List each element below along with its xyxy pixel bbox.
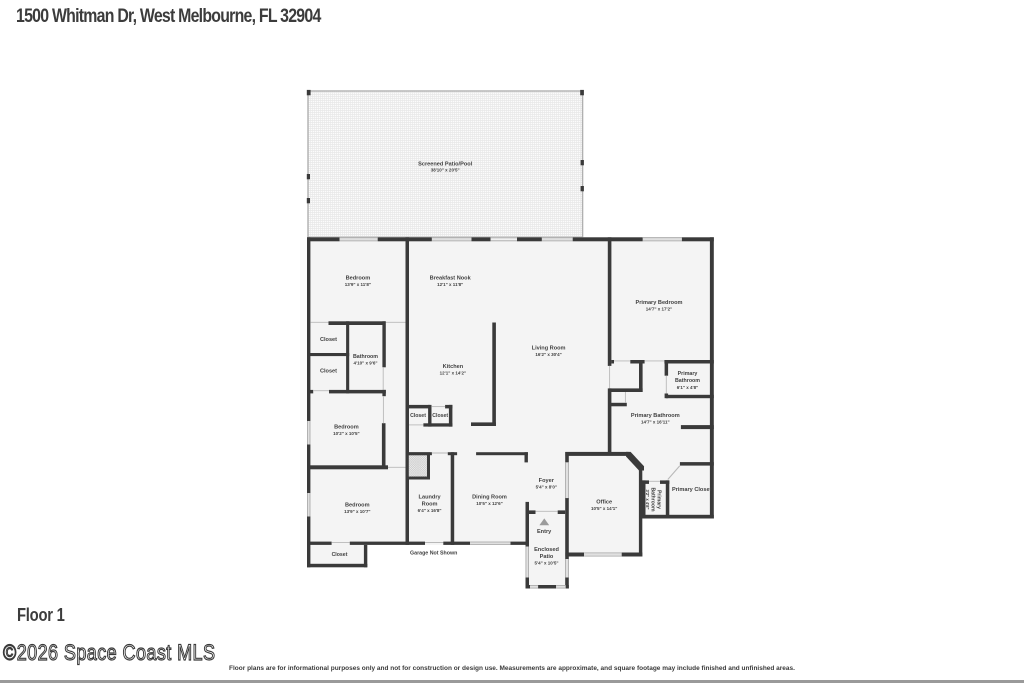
svg-text:12'1" x 14'2": 12'1" x 14'2" <box>440 371 466 376</box>
svg-text:Laundry: Laundry <box>419 495 442 501</box>
svg-text:Closet: Closet <box>332 552 348 558</box>
svg-text:Room: Room <box>422 501 438 507</box>
svg-text:Closet: Closet <box>320 337 337 343</box>
svg-text:10'2" x 10'5": 10'2" x 10'5" <box>333 431 359 436</box>
svg-text:Breakfast Nook: Breakfast Nook <box>430 276 472 282</box>
svg-text:Closet: Closet <box>432 413 448 419</box>
svg-text:Entry: Entry <box>537 529 552 535</box>
svg-text:5'4" x 8'0": 5'4" x 8'0" <box>536 484 557 489</box>
svg-text:Screened Patio/Pool: Screened Patio/Pool <box>418 161 473 167</box>
svg-text:4'10" x 9'6": 4'10" x 9'6" <box>354 360 378 365</box>
svg-text:12'1" x 11'8": 12'1" x 11'8" <box>437 282 463 287</box>
svg-text:3'2" x 4'8": 3'2" x 4'8" <box>645 490 650 510</box>
svg-text:Bathroom: Bathroom <box>675 378 700 384</box>
svg-text:Patio: Patio <box>540 554 554 560</box>
svg-text:38'10" x 20'5": 38'10" x 20'5" <box>431 168 460 173</box>
svg-text:6'4" x 16'8": 6'4" x 16'8" <box>418 508 442 513</box>
svg-text:Primary: Primary <box>678 371 698 377</box>
svg-text:Dining Room: Dining Room <box>472 495 507 501</box>
svg-text:Primary: Primary <box>656 490 662 509</box>
svg-text:Bathroom: Bathroom <box>353 354 378 360</box>
svg-text:Living Room: Living Room <box>532 346 566 352</box>
svg-text:6'1" x 4'8": 6'1" x 4'8" <box>677 385 698 390</box>
svg-text:Bedroom: Bedroom <box>345 503 370 509</box>
svg-text:5'4" x 10'5": 5'4" x 10'5" <box>535 561 559 566</box>
svg-text:Enclosed: Enclosed <box>534 547 559 553</box>
svg-text:10'5" x 12'6": 10'5" x 12'6" <box>476 501 502 506</box>
svg-text:13'9" x 10'7": 13'9" x 10'7" <box>344 509 370 514</box>
svg-text:Office: Office <box>596 500 612 506</box>
svg-text:14'7" x 16'11": 14'7" x 16'11" <box>641 420 670 425</box>
svg-text:Primary Bedroom: Primary Bedroom <box>636 300 683 306</box>
svg-text:Primary Bathroom: Primary Bathroom <box>631 413 680 419</box>
svg-text:Primary Closet: Primary Closet <box>672 487 712 493</box>
svg-text:13'9" x 11'8": 13'9" x 11'8" <box>345 282 371 287</box>
svg-text:Kitchen: Kitchen <box>443 364 464 370</box>
svg-text:Garage Not Shown: Garage Not Shown <box>410 551 457 557</box>
svg-text:16'2" x 30'4": 16'2" x 30'4" <box>535 352 561 357</box>
svg-text:Closet: Closet <box>410 413 426 419</box>
svg-text:Bedroom: Bedroom <box>346 276 371 282</box>
svg-text:14'7" x 17'2": 14'7" x 17'2" <box>646 307 672 312</box>
svg-text:10'5" x 14'1": 10'5" x 14'1" <box>591 506 617 511</box>
svg-text:Foyer: Foyer <box>539 478 555 484</box>
svg-text:Bedroom: Bedroom <box>334 425 359 431</box>
svg-text:Closet: Closet <box>320 369 337 375</box>
